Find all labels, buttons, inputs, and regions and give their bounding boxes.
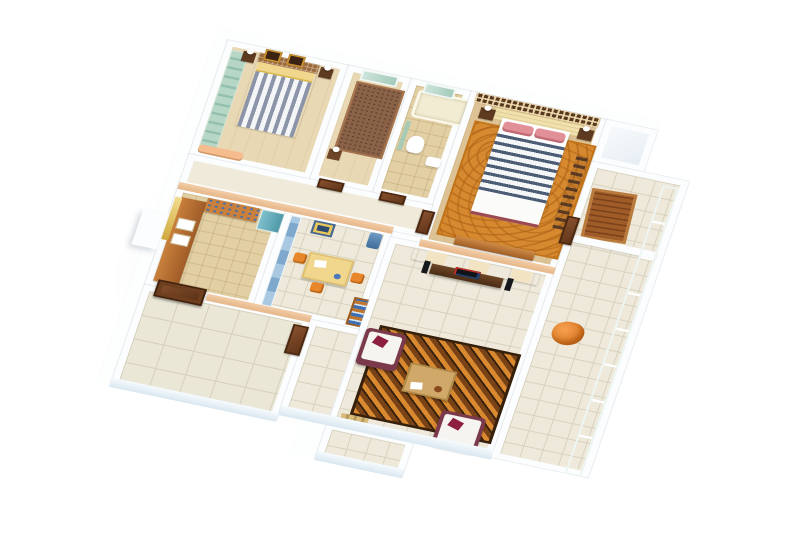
dining-chair — [349, 272, 365, 285]
floorplan-render — [0, 0, 800, 550]
paper — [314, 260, 327, 268]
wood-deck-mat — [580, 188, 637, 244]
paper — [410, 382, 423, 390]
bed-striped — [235, 52, 320, 137]
sink — [175, 218, 196, 232]
lamp — [323, 65, 332, 72]
sink — [170, 233, 191, 247]
nightstand — [318, 67, 334, 80]
speaker — [504, 278, 514, 291]
orange-lounge-chair — [549, 319, 588, 348]
dining-table — [301, 252, 354, 287]
side-table — [326, 148, 342, 161]
dining-chair — [309, 281, 325, 294]
bowl — [433, 385, 443, 393]
nightstand — [576, 128, 594, 142]
lamp — [246, 48, 255, 55]
striped-duvet — [237, 71, 312, 137]
water-cooler — [365, 232, 383, 250]
bowl — [333, 273, 342, 280]
wall-picture — [310, 220, 336, 237]
toilet — [404, 134, 426, 154]
washbasin — [424, 156, 442, 168]
sofa-cushion — [361, 331, 403, 365]
lamp — [332, 146, 341, 153]
